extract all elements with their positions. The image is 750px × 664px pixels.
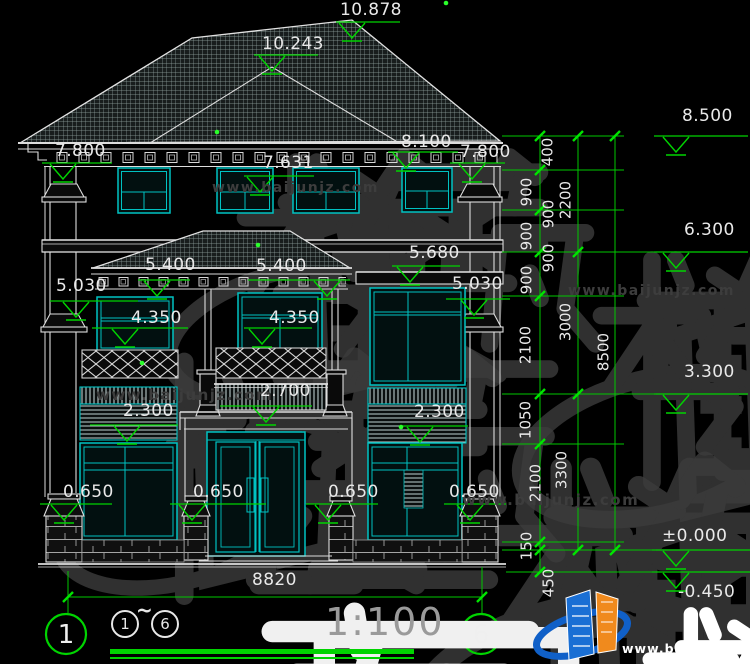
chain-a-dim-9: 150 bbox=[520, 532, 535, 561]
level-label-canopy: 7.631 bbox=[263, 155, 314, 172]
datum-label-zero: ±0.000 bbox=[662, 528, 727, 545]
level-label-louver-left: 2.300 bbox=[123, 403, 174, 420]
datum-label-top: 8.500 bbox=[682, 108, 733, 125]
level-label-transom-center: 4.350 bbox=[269, 310, 320, 327]
datum-label-second: 6.300 bbox=[684, 222, 735, 239]
level-label-louver-right: 2.300 bbox=[414, 404, 465, 421]
title-grid-end-circle: 6 bbox=[151, 610, 179, 638]
overall-width-dim: 8820 bbox=[252, 572, 297, 589]
level-label-main-ridge: 10.878 bbox=[340, 2, 402, 19]
chain-a-dim-1: 900 bbox=[520, 178, 535, 207]
level-label-rail: 2.700 bbox=[260, 383, 311, 400]
level-label-head-right: 5.030 bbox=[452, 276, 503, 293]
elevation-drawing bbox=[0, 0, 750, 664]
chain-a-dim-10: 450 bbox=[542, 569, 557, 598]
chain-b-dim-2: 3300 bbox=[555, 451, 570, 489]
title-underline bbox=[110, 649, 414, 659]
level-label-eave-top: 8.100 bbox=[401, 134, 452, 151]
level-label-sill-3: 0.650 bbox=[328, 484, 379, 501]
level-label-porch-center: 5.400 bbox=[256, 258, 307, 275]
chain-a-dim-0: 400 bbox=[541, 138, 556, 167]
chain-a-dim-5: 900 bbox=[520, 266, 535, 295]
datum-label-third: 3.300 bbox=[684, 364, 735, 381]
brand-logo-url: www.baijunjz.com bbox=[622, 641, 750, 656]
chain-b-dim-0: 2200 bbox=[559, 181, 574, 219]
chain-a-dim-8: 2100 bbox=[529, 464, 544, 502]
level-label-band-right: 5.680 bbox=[409, 245, 460, 262]
datum-label-ground: -0.450 bbox=[678, 584, 735, 601]
title-tilde: ~ bbox=[136, 598, 153, 622]
watermark-url-right: www.baijunjz.com bbox=[568, 283, 735, 299]
level-label-head-left: 5.030 bbox=[56, 278, 107, 295]
level-label-eave-right: 7.800 bbox=[460, 144, 511, 161]
level-label-sill-2: 0.650 bbox=[193, 484, 244, 501]
level-label-porch-left: 5.400 bbox=[145, 257, 196, 274]
chain-c-dim: 8500 bbox=[597, 333, 612, 371]
title-grid-start-circle: 1 bbox=[111, 610, 139, 638]
level-label-sill-4: 0.650 bbox=[449, 484, 500, 501]
level-label-transom-left: 4.350 bbox=[131, 310, 182, 327]
watermark-url-top: www.baijunjz.com bbox=[212, 180, 379, 196]
grid-bubble-left-number: 1 bbox=[46, 620, 86, 650]
chain-a-dim-2: 900 bbox=[542, 200, 557, 229]
level-label-sill-1: 0.650 bbox=[63, 484, 114, 501]
cad-elevation-canvas: 10.878 10.243 8.100 7.800 7.800 7.631 5.… bbox=[0, 0, 750, 664]
grid-bubble-right-number: 6 bbox=[461, 620, 501, 650]
chain-b-dim-1: 3000 bbox=[559, 303, 574, 341]
level-label-sub-ridge: 10.243 bbox=[262, 36, 324, 53]
level-label-eave-left: 7.800 bbox=[55, 143, 106, 160]
title-scale: 1:100 bbox=[325, 600, 445, 644]
chain-a-dim-6: 2100 bbox=[519, 326, 534, 364]
chain-a-dim-3: 900 bbox=[520, 222, 535, 251]
chain-a-dim-4: 900 bbox=[542, 244, 557, 273]
chain-a-dim-7: 1050 bbox=[519, 401, 534, 439]
